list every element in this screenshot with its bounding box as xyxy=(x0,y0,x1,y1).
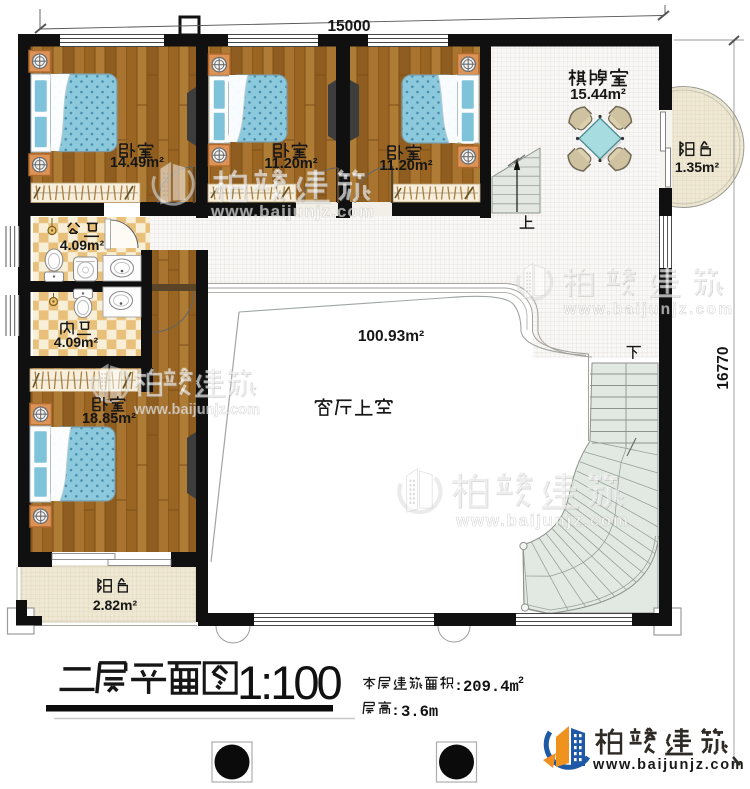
svg-text:100.93m²: 100.93m² xyxy=(358,328,424,345)
svg-text:14.49m²: 14.49m² xyxy=(110,155,164,171)
svg-text::: : xyxy=(456,677,461,694)
svg-text:11.20m²: 11.20m² xyxy=(379,158,432,174)
svg-text:16770: 16770 xyxy=(715,346,732,389)
svg-text:3.6m: 3.6m xyxy=(401,703,438,721)
svg-text:www.baijunjz.com: www.baijunjz.com xyxy=(592,757,745,773)
svg-text:15.44m²: 15.44m² xyxy=(570,86,626,103)
svg-text:4.09m²: 4.09m² xyxy=(54,334,99,350)
svg-text:11.20m²: 11.20m² xyxy=(264,156,317,172)
svg-text:2.82m²: 2.82m² xyxy=(93,597,138,613)
svg-text:18.85m²: 18.85m² xyxy=(82,411,136,427)
svg-text::: : xyxy=(393,702,398,719)
svg-text:2: 2 xyxy=(518,676,524,687)
svg-text:15000: 15000 xyxy=(327,18,370,35)
svg-text:www.baijunjz.com: www.baijunjz.com xyxy=(133,402,260,418)
svg-text:1.35m²: 1.35m² xyxy=(675,159,720,175)
svg-text:www.baijunjz.com: www.baijunjz.com xyxy=(210,202,374,221)
svg-text:209.4m: 209.4m xyxy=(463,678,519,696)
svg-text:4.09m²: 4.09m² xyxy=(60,237,105,253)
svg-text:1:100: 1:100 xyxy=(237,656,341,709)
